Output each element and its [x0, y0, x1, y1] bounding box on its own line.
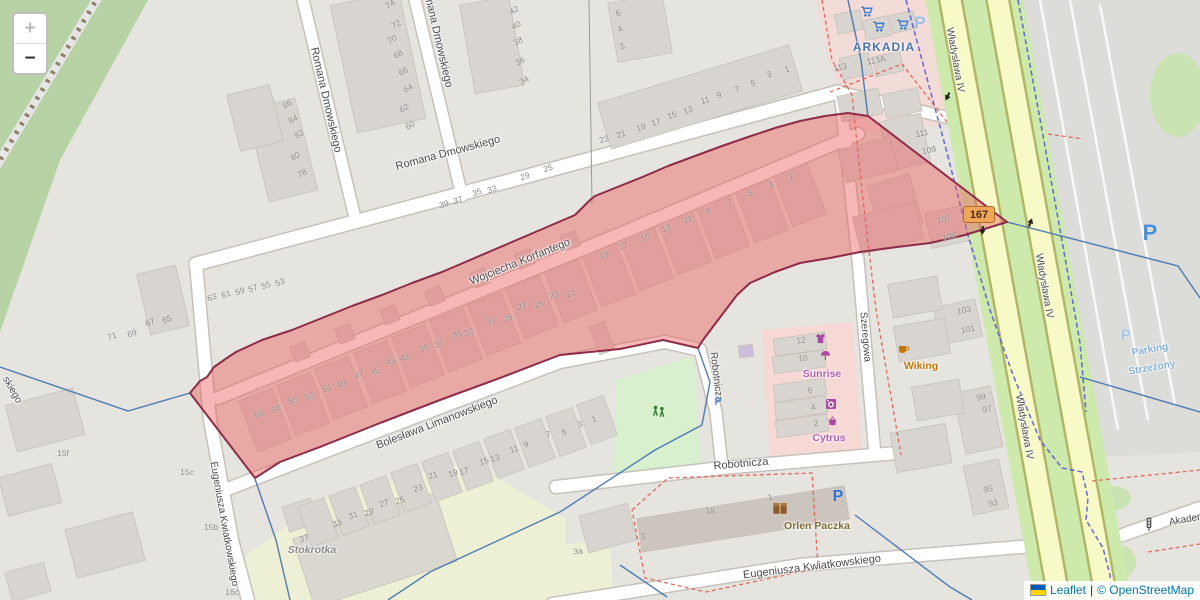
map-render-layer — [0, 0, 1200, 600]
building — [637, 486, 850, 552]
boundary-red — [1148, 544, 1200, 552]
building — [227, 85, 284, 152]
zoom-control: + − — [12, 12, 48, 75]
fence-line — [589, 0, 592, 205]
building — [137, 265, 190, 334]
building — [738, 344, 754, 358]
playground — [612, 356, 701, 482]
zoom-in-button[interactable]: + — [14, 14, 46, 44]
building — [65, 512, 146, 578]
building — [5, 562, 51, 600]
building — [330, 0, 425, 133]
wash-icon — [826, 399, 836, 409]
side-street-north-2 — [415, 0, 462, 196]
osm-link[interactable]: © OpenStreetMap — [1097, 583, 1194, 597]
attribution-bar: Leaflet | © OpenStreetMap — [1024, 581, 1200, 600]
building — [0, 464, 62, 517]
leaflet-link[interactable]: Leaflet — [1050, 583, 1086, 597]
building — [579, 503, 637, 553]
box-icon — [773, 503, 786, 514]
building — [5, 388, 85, 452]
building — [893, 318, 950, 362]
map-canvas[interactable]: Romana DmowskiegoRomana DmowskiegoRomana… — [0, 0, 1200, 600]
zoom-out-button[interactable]: − — [14, 44, 46, 73]
ukraine-flag-icon — [1030, 584, 1046, 596]
building — [460, 0, 525, 94]
building — [963, 459, 1009, 515]
road-ref-badge: 167 — [963, 206, 995, 223]
attribution-separator: | — [1090, 583, 1093, 597]
building — [608, 0, 673, 62]
fence-line — [589, 0, 592, 205]
building — [911, 379, 964, 421]
